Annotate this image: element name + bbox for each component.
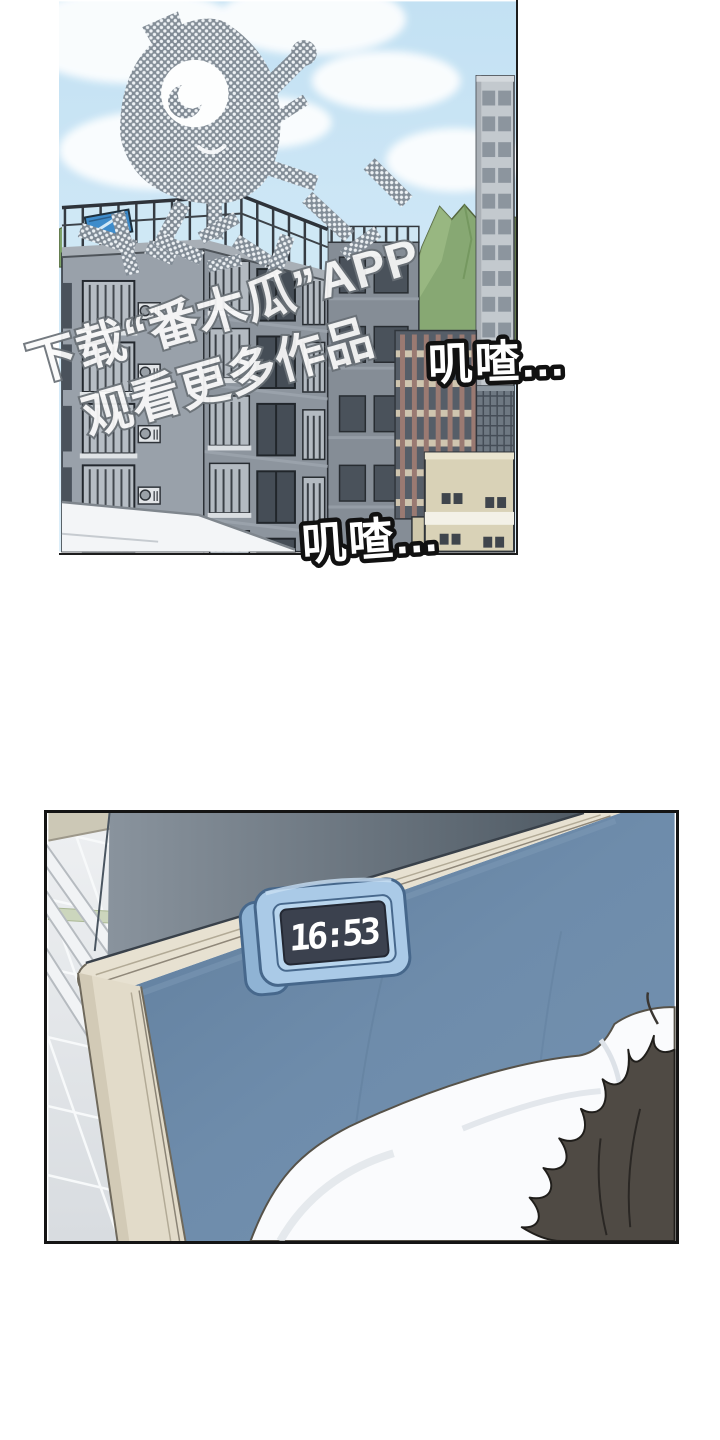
cream-building (412, 452, 514, 551)
city-scene (59, 0, 516, 553)
bedroom-scene: 16:53 (47, 813, 676, 1241)
clock-time: 16:53 (289, 911, 382, 960)
glass-building (476, 386, 514, 459)
panel-city (59, 0, 518, 555)
panel-bedroom: 16:53 (44, 810, 679, 1244)
mascot-eye (161, 60, 228, 127)
comic-page: 下载“番木瓜”APP 观看更多作品 叽喳... 叽喳... (0, 0, 720, 1440)
